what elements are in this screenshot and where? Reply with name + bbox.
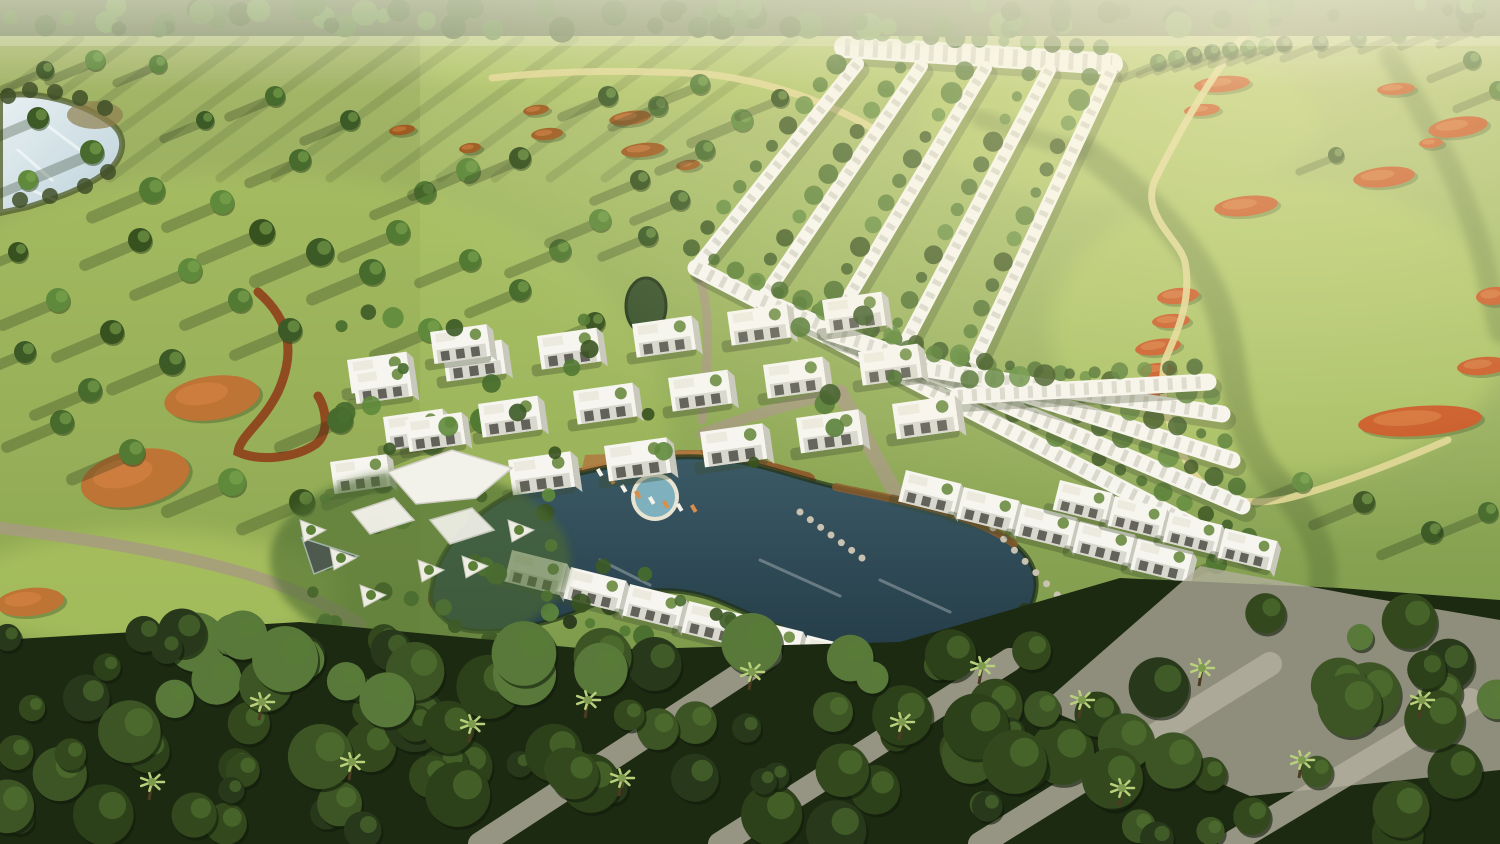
aerial-development-rendering [0,0,1500,844]
aerial-render-viewport [0,0,1500,844]
sun-haze [0,0,1500,844]
sun-glow [0,0,1500,844]
top-wash [0,0,1500,90]
